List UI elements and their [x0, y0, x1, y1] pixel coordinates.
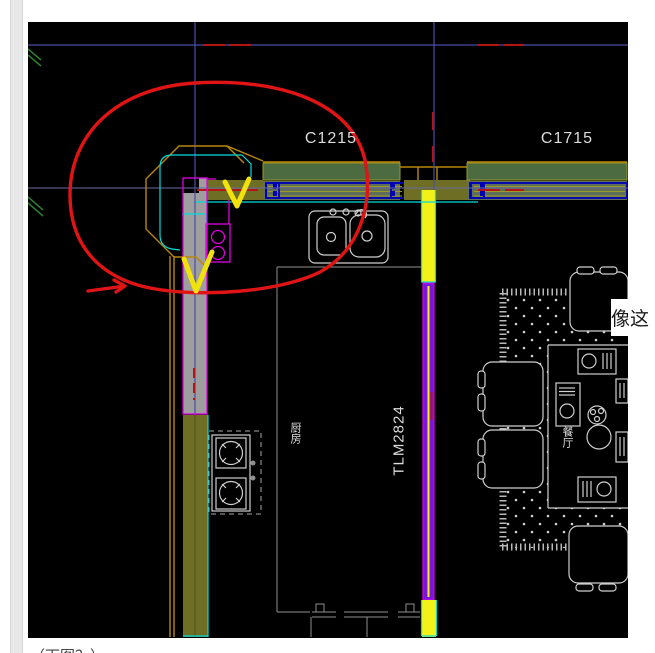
- cad-floorplan-image: C1215 C1715 TLM2824 厨房 餐厅: [28, 22, 628, 638]
- label-room-dining: 餐厅: [560, 426, 573, 448]
- dining-chair: [478, 430, 543, 488]
- label-window-c1215: C1215: [286, 130, 376, 148]
- place-setting: [578, 349, 616, 374]
- forum-screenshot-page: C1215 C1715 TLM2824 厨房 餐厅 像这 （下图？）: [0, 0, 655, 653]
- window-c1715: [467, 163, 627, 200]
- cad-drawing: [28, 22, 628, 638]
- dining-chair: [569, 526, 628, 591]
- stove-knob: [251, 461, 256, 466]
- label-room-kitchen: 厨房: [288, 422, 301, 444]
- page-scrollbar[interactable]: [10, 0, 23, 653]
- stove-knob: [251, 476, 256, 481]
- window-c1215: [263, 163, 404, 200]
- label-door-tlm2824: TLM2824: [391, 396, 408, 486]
- label-window-c1715: C1715: [522, 130, 612, 148]
- pier-column-yellow: [422, 190, 436, 282]
- place-setting: [616, 379, 628, 403]
- dining-chair: [478, 362, 543, 426]
- place-setting: [616, 432, 628, 462]
- place-setting: [556, 383, 580, 426]
- bottom-caption: （下图？）: [30, 645, 105, 653]
- balcony-door-column: [422, 283, 436, 637]
- place-setting: [578, 477, 616, 502]
- right-margin-note: 像这: [611, 299, 655, 336]
